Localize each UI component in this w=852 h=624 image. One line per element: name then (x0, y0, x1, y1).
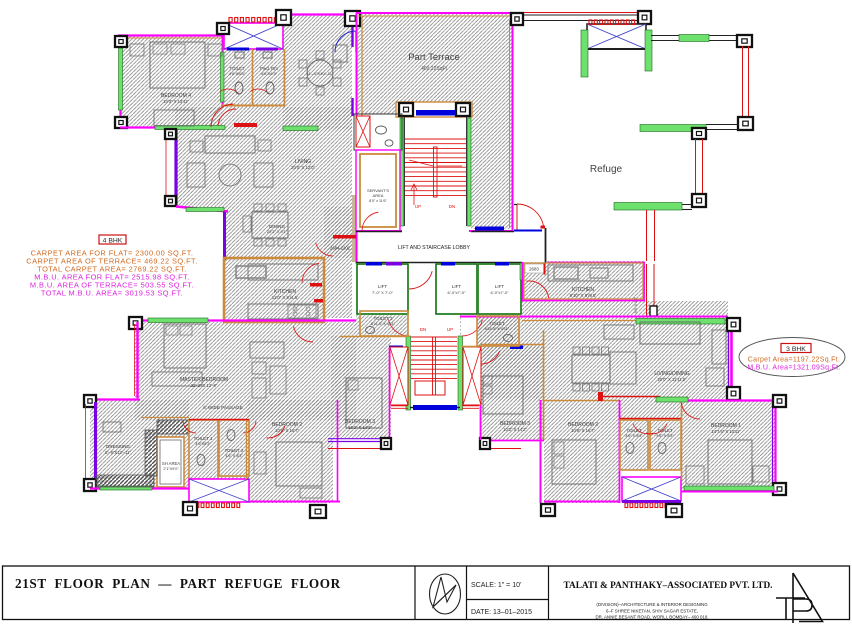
svg-text:11’–0”X10’–11”: 11’–0”X10’–11” (307, 71, 334, 76)
svg-text:10’9” X 16’7”: 10’9” X 16’7” (571, 428, 595, 433)
svg-text:LIFT: LIFT (378, 284, 388, 289)
svg-text:SH AREA: SH AREA (162, 461, 180, 466)
svg-text:LIFT: LIFT (452, 284, 462, 289)
svg-text:(DIVISION)–ARCHITECTURE & INTE: (DIVISION)–ARCHITECTURE & INTERIOR DESIG… (596, 602, 708, 607)
svg-text:469.22SqFt: 469.22SqFt (421, 66, 447, 72)
svg-text:DATE: 13–01–2015: DATE: 13–01–2015 (471, 609, 532, 616)
svg-text:6’-0”x7’-0”: 6’-0”x7’-0” (447, 290, 466, 295)
svg-text:Part Terrace: Part Terrace (408, 52, 460, 63)
svg-text:TOILET: TOILET (489, 321, 505, 326)
svg-text:20’0” X 12’0”: 20’0” X 12’0” (291, 165, 315, 170)
svg-text:7’-0” X 7’-0”: 7’-0” X 7’-0” (372, 290, 394, 295)
svg-text:4’6”X8’3”: 4’6”X8’3” (229, 71, 246, 76)
svg-text:9’10” X 8’/9.5’: 9’10” X 8’/9.5’ (570, 293, 597, 298)
svg-text:UP: UP (415, 204, 421, 209)
svg-text:4’6” X 8’3”: 4’6” X 8’3” (225, 454, 243, 458)
svg-text:LIFT AND STAIRCASE LOBBY: LIFT AND STAIRCASE LOBBY (398, 245, 470, 251)
svg-text:DN: DN (449, 204, 456, 209)
svg-text:2683: 2683 (529, 267, 539, 272)
svg-text:9’8” X 3’7”: 9’8” X 3’7” (634, 296, 638, 313)
svg-text:6’-0”x7’-0”: 6’-0”x7’-0” (490, 290, 509, 295)
svg-text:DRESSING: DRESSING (106, 444, 130, 449)
svg-text:TOILET 2: TOILET 2 (225, 448, 244, 453)
svg-text:11’0” X 8’/4.5’: 11’0” X 8’/4.5’ (272, 295, 299, 300)
svg-text:8’0” x 11’6”: 8’0” x 11’6” (369, 199, 387, 203)
svg-text:UP: UP (447, 327, 453, 332)
svg-text:21ST FLOOR PLAN — PART RE: 21ST FLOOR PLAN — PART REFUGE FLOOR (15, 576, 341, 591)
svg-text:20’0” X 11’11.5”: 20’0” X 11’11.5” (658, 377, 688, 382)
svg-text:TOTAL M.B.U. AREA= 3019.53 SQ.: TOTAL M.B.U. AREA= 3019.53 SQ.FT. (41, 289, 183, 298)
svg-text:AREA: AREA (373, 193, 384, 198)
svg-text:LIFT: LIFT (495, 284, 505, 289)
svg-text:8’11.5” X 4’11”: 8’11.5” X 4’11” (371, 322, 396, 326)
svg-text:16’2” X 14’2”: 16’2” X 14’2” (348, 425, 372, 430)
svg-text:14’7.5” X 13’11”: 14’7.5” X 13’11” (711, 429, 741, 434)
svg-text:TALATI & PANTHAKY–ASSOCIATED P: TALATI & PANTHAKY–ASSOCIATED PVT. LTD. (563, 581, 772, 591)
svg-text:2’1”X9’0”: 2’1”X9’0” (163, 467, 179, 471)
svg-text:TOILET: TOILET (626, 428, 642, 433)
svg-text:2684-2202: 2684-2202 (330, 246, 351, 251)
svg-text:Carpet Area=1197.22Sq.Ft.: Carpet Area=1197.22Sq.Ft. (748, 357, 840, 364)
svg-text:10’0” X 16’7”: 10’0” X 16’7” (275, 428, 299, 433)
svg-text:3 BHK: 3 BHK (786, 346, 806, 353)
svg-text:DR. ANNIE BESANT ROAD, WORLI,: DR. ANNIE BESANT ROAD, WORLI, BOMBAY– 40… (595, 615, 708, 620)
svg-text:6’ WIDE PASSAGE: 6’ WIDE PASSAGE (203, 405, 243, 410)
svg-text:TOILET 1: TOILET 1 (194, 436, 213, 441)
svg-text:SCALE: 1" = 10’: SCALE: 1" = 10’ (471, 582, 522, 589)
svg-text:6’11.5” X 4’11”: 6’11.5” X 4’11” (485, 327, 510, 331)
svg-text:10’2” X 14’2”: 10’2” X 14’2” (503, 427, 527, 432)
svg-text:M.B.U. Area=1321.09Sq.Ft.: M.B.U. Area=1321.09Sq.Ft. (747, 365, 840, 372)
svg-text:4 BHK: 4 BHK (103, 237, 123, 244)
svg-text:Refuge: Refuge (590, 164, 623, 175)
svg-text:14’3” X 13’11”: 14’3” X 13’11” (163, 99, 189, 104)
svg-text:22’-3” X 12’-9”: 22’-3” X 12’-9” (191, 383, 218, 388)
svg-text:4’6”X6’3”: 4’6”X6’3” (261, 71, 278, 76)
svg-text:20’3” X 9’1”: 20’3” X 9’1” (267, 229, 288, 234)
svg-text:DN: DN (420, 327, 427, 332)
svg-text:6’–6”X13’–11”: 6’–6”X13’–11” (105, 450, 131, 455)
svg-text:TOILET 3: TOILET 3 (374, 316, 393, 321)
svg-text:4’6” X 8’3”: 4’6” X 8’3” (625, 434, 643, 438)
svg-text:4’6”X8’3”: 4’6”X8’3” (195, 442, 211, 446)
svg-text:4’6” X 8’3”: 4’6” X 8’3” (656, 434, 674, 438)
svg-text:6–F SHREE NIKETAN, SHIV SAGAR: 6–F SHREE NIKETAN, SHIV SAGAR ESTATE, (606, 609, 698, 614)
